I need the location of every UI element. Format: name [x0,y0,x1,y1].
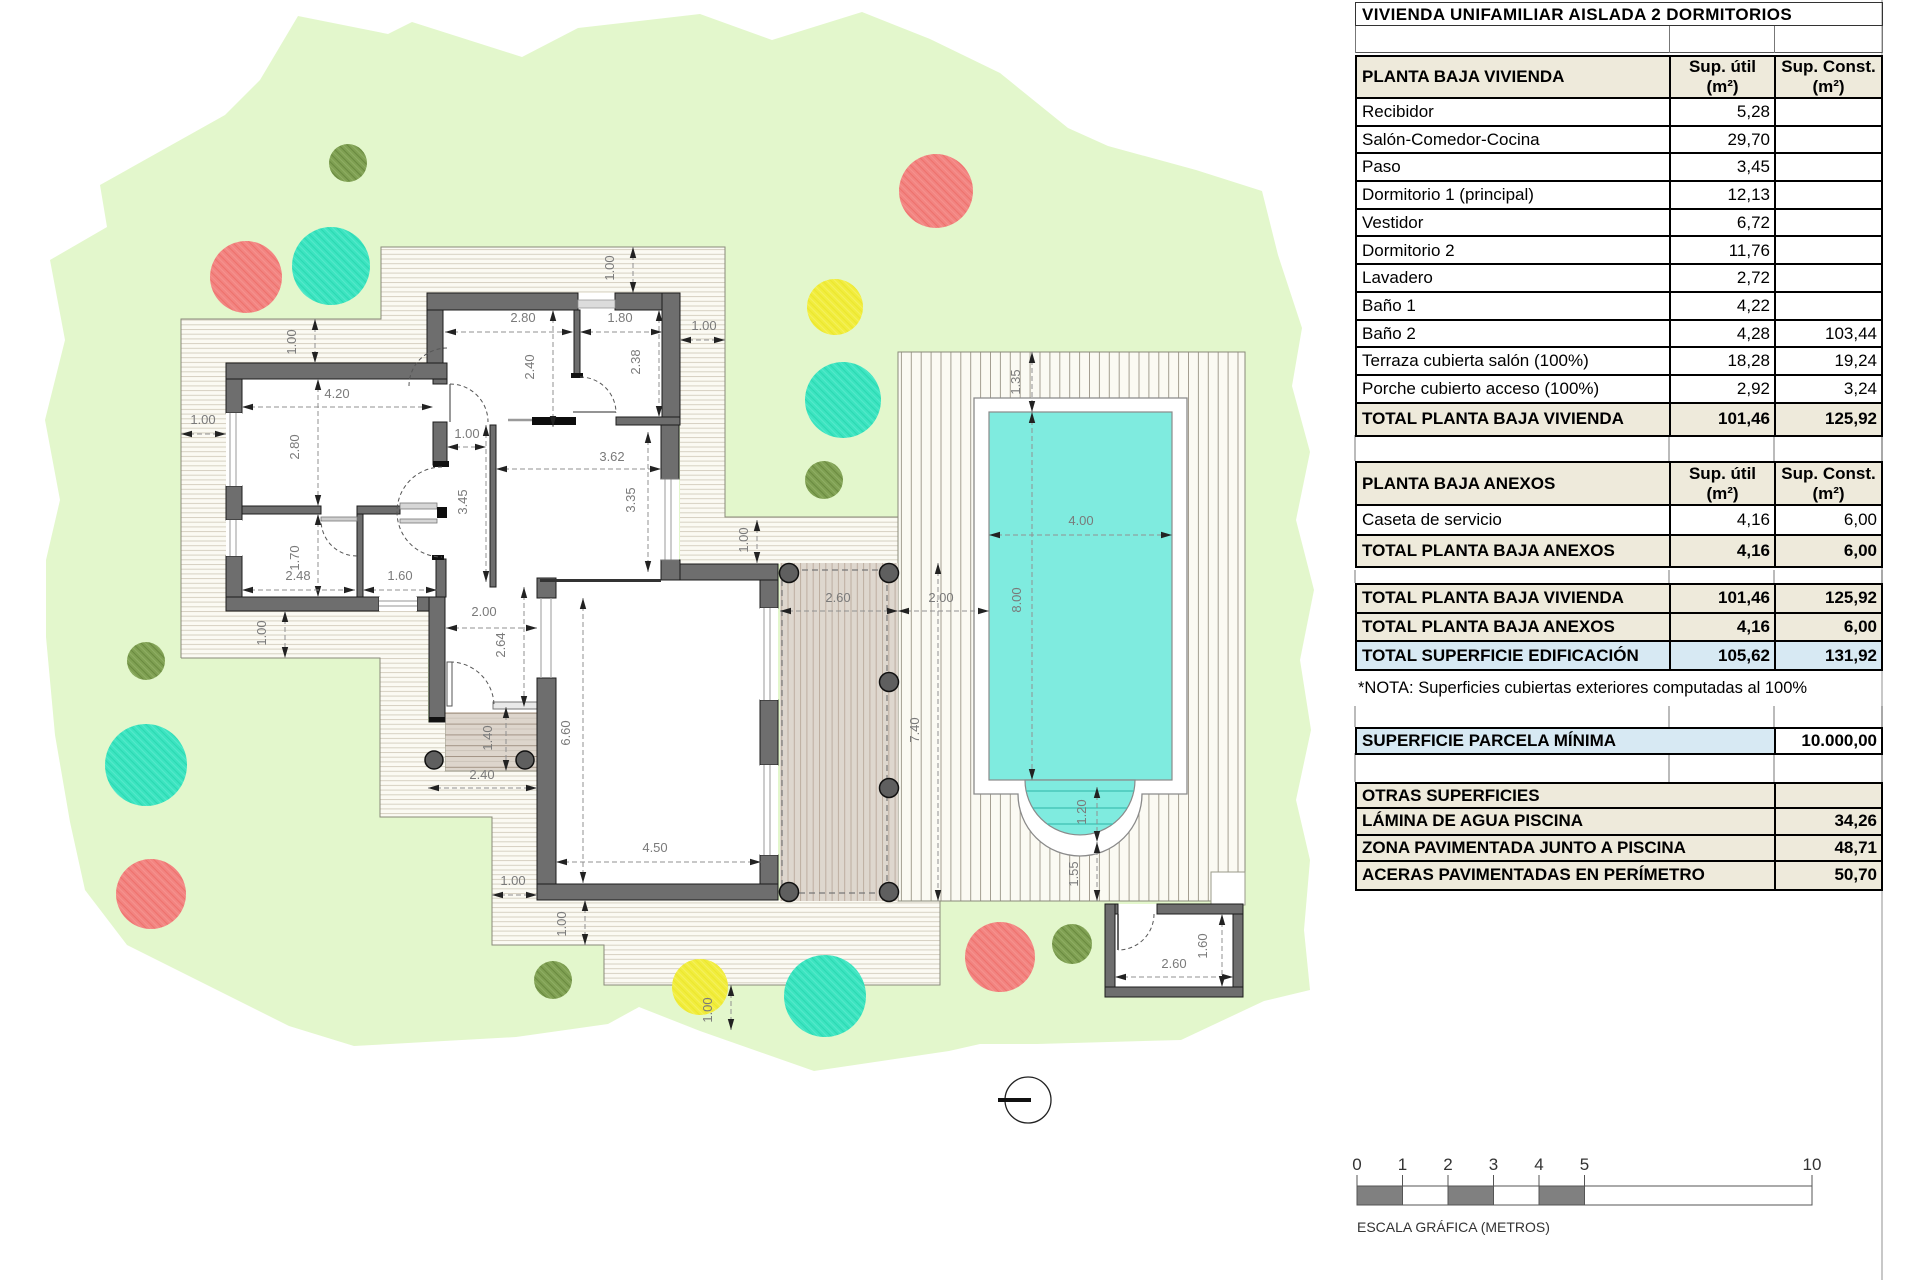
svg-text:8.00: 8.00 [1009,587,1024,612]
svg-text:2.60: 2.60 [825,590,850,605]
svg-text:1.00: 1.00 [190,412,215,427]
svg-text:1.00: 1.00 [500,873,525,888]
svg-text:4.50: 4.50 [642,840,667,855]
svg-text:4: 4 [1534,1155,1543,1174]
svg-text:2.80: 2.80 [510,310,535,325]
svg-text:4.00: 4.00 [1068,513,1093,528]
svg-text:ESCALA GRÁFICA (METROS): ESCALA GRÁFICA (METROS) [1357,1219,1550,1235]
svg-text:1.35: 1.35 [1008,369,1023,394]
svg-text:1.00: 1.00 [691,318,716,333]
svg-text:10: 10 [1803,1155,1822,1174]
svg-text:1.00: 1.00 [602,255,617,280]
svg-text:2: 2 [1443,1155,1452,1174]
svg-text:2.64: 2.64 [493,632,508,657]
svg-text:6.60: 6.60 [558,720,573,745]
svg-text:2.80: 2.80 [287,434,302,459]
svg-text:1.60: 1.60 [387,568,412,583]
svg-text:2.48: 2.48 [285,568,310,583]
svg-text:2.38: 2.38 [628,349,643,374]
svg-text:2.40: 2.40 [469,767,494,782]
svg-text:1.70: 1.70 [287,545,302,570]
svg-text:0: 0 [1352,1155,1361,1174]
svg-text:1.40: 1.40 [480,725,495,750]
svg-text:7.40: 7.40 [907,717,922,742]
svg-text:1.00: 1.00 [700,997,715,1022]
svg-text:3.62: 3.62 [599,449,624,464]
svg-text:1.00: 1.00 [284,329,299,354]
svg-text:2.00: 2.00 [471,604,496,619]
svg-text:1.20: 1.20 [1074,799,1089,824]
svg-text:3.45: 3.45 [455,489,470,514]
svg-text:1.00: 1.00 [554,911,569,936]
svg-text:1.00: 1.00 [736,527,751,552]
svg-text:1.00: 1.00 [254,620,269,645]
svg-text:2.60: 2.60 [1161,956,1186,971]
svg-text:5: 5 [1580,1155,1589,1174]
svg-text:2.40: 2.40 [522,354,537,379]
svg-text:1.00: 1.00 [454,426,479,441]
svg-text:1.80: 1.80 [607,310,632,325]
svg-text:3.35: 3.35 [623,487,638,512]
svg-text:4.20: 4.20 [324,386,349,401]
svg-text:1.60: 1.60 [1195,933,1210,958]
svg-text:1.55: 1.55 [1066,861,1081,886]
svg-text:3: 3 [1489,1155,1498,1174]
svg-text:1: 1 [1398,1155,1407,1174]
svg-text:2.00: 2.00 [928,590,953,605]
